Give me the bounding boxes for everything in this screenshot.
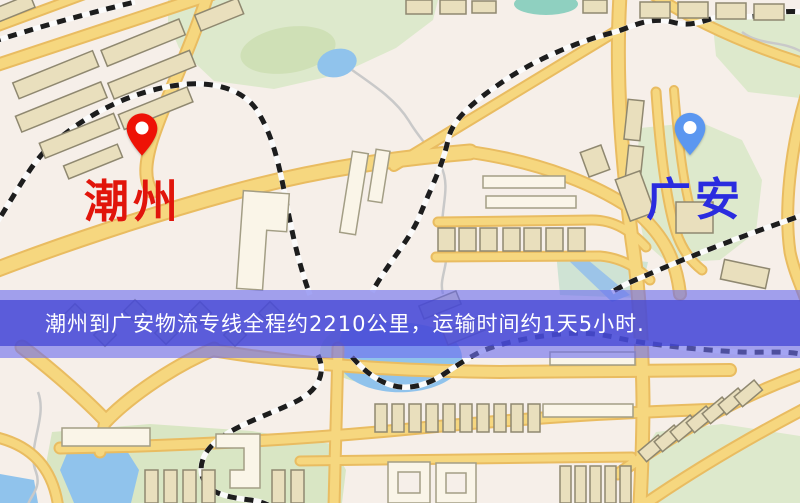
destination-pin-icon[interactable] <box>667 100 713 168</box>
destination-pin-hole <box>683 121 696 134</box>
origin-pin-hole <box>135 121 148 134</box>
origin-city-label: 潮州 <box>84 179 182 224</box>
route-info-banner-band: 潮州到广安物流专线全程约2210公里，运输时间约1天5小时. <box>0 300 800 346</box>
map-view[interactable]: 潮州 广安 潮州到广安物流专线全程约2210公里，运输时间约1天5小时. <box>0 0 800 503</box>
route-info-text: 潮州到广安物流专线全程约2210公里，运输时间约1天5小时. <box>0 308 645 338</box>
route-info-banner: 潮州到广安物流专线全程约2210公里，运输时间约1天5小时. <box>0 290 800 358</box>
map-canvas <box>0 0 800 503</box>
destination-city-label: 广安 <box>646 177 744 222</box>
origin-pin-icon[interactable] <box>119 101 165 168</box>
